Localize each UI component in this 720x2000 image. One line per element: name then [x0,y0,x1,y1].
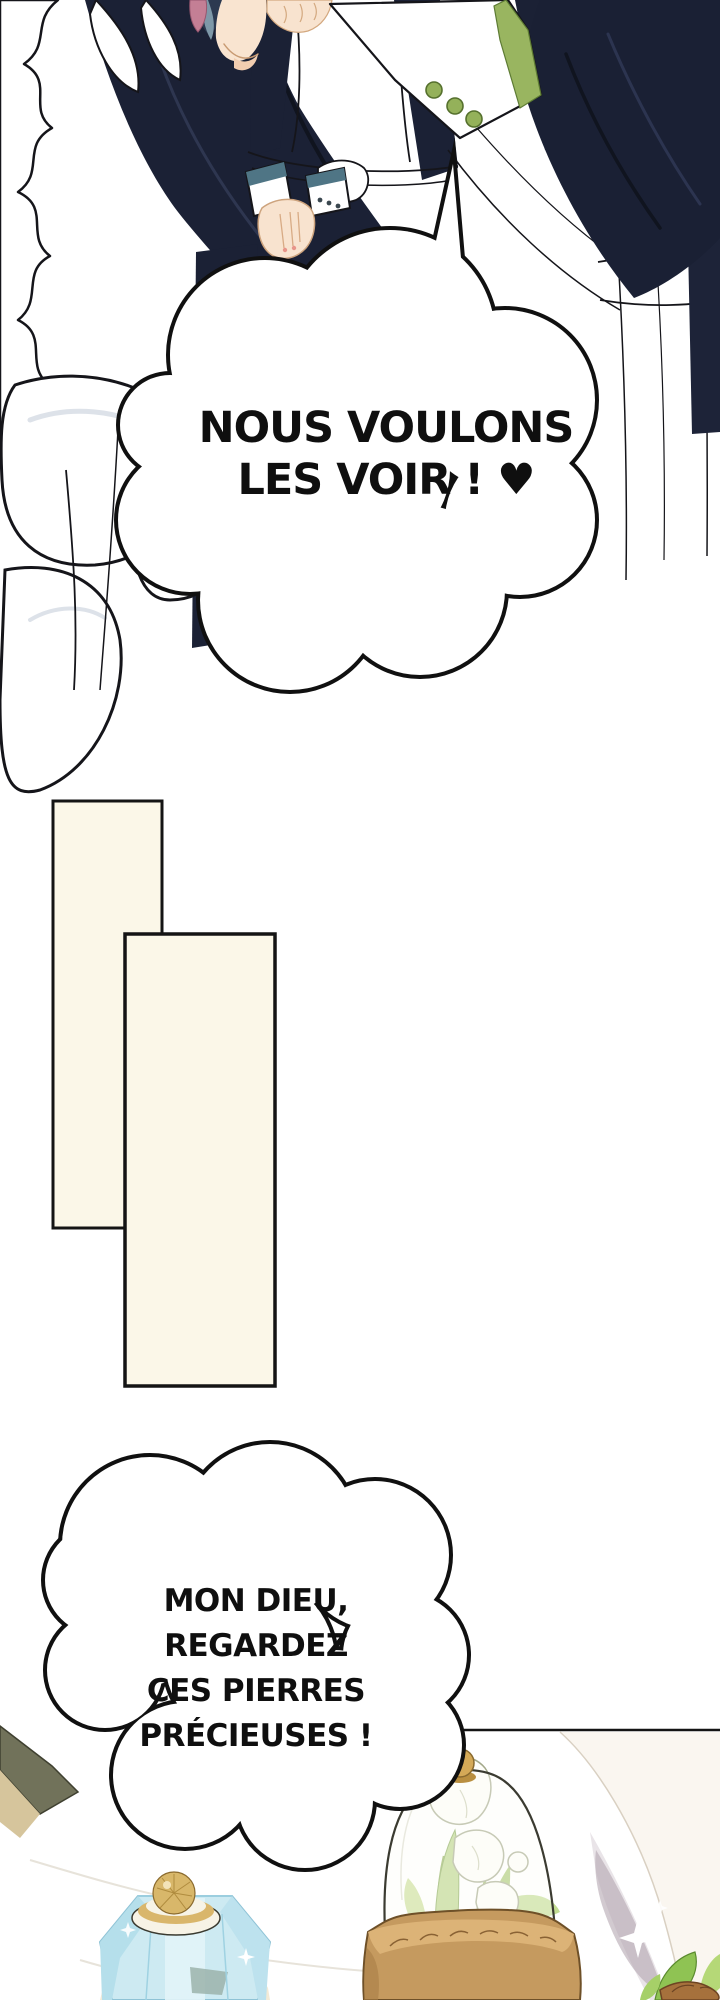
man-navy-sleeve [526,0,720,298]
panel-rect-2 [125,934,275,1386]
speech-line: REGARDEZ [96,1624,416,1669]
blue-crystal-bottle [100,1872,270,2000]
speech-bubble-2-text: MON DIEU, REGARDEZ CES PIERRES PRÉCIEUSE… [96,1579,416,1759]
speech-bubble-1-text: NOUS VOULONS LES VOIR ! ♥ [196,402,576,506]
cuff-button [426,82,442,98]
speech-line: CES PIERRES [96,1669,416,1714]
comic-page: NOUS VOULONS LES VOIR ! ♥ MON DIEU, REGA… [0,0,720,2000]
speech-line: LES VOIR ! ♥ [196,454,576,506]
corner-shelf-edge [0,1726,78,1838]
cuff-button [466,111,482,127]
speech-line: MON DIEU, [96,1579,416,1624]
speech-line: NOUS VOULONS [196,402,576,454]
speech-line: PRÉCIEUSES ! [96,1714,416,1759]
cuff-button [447,98,463,114]
panel-rectangles [53,801,275,1386]
